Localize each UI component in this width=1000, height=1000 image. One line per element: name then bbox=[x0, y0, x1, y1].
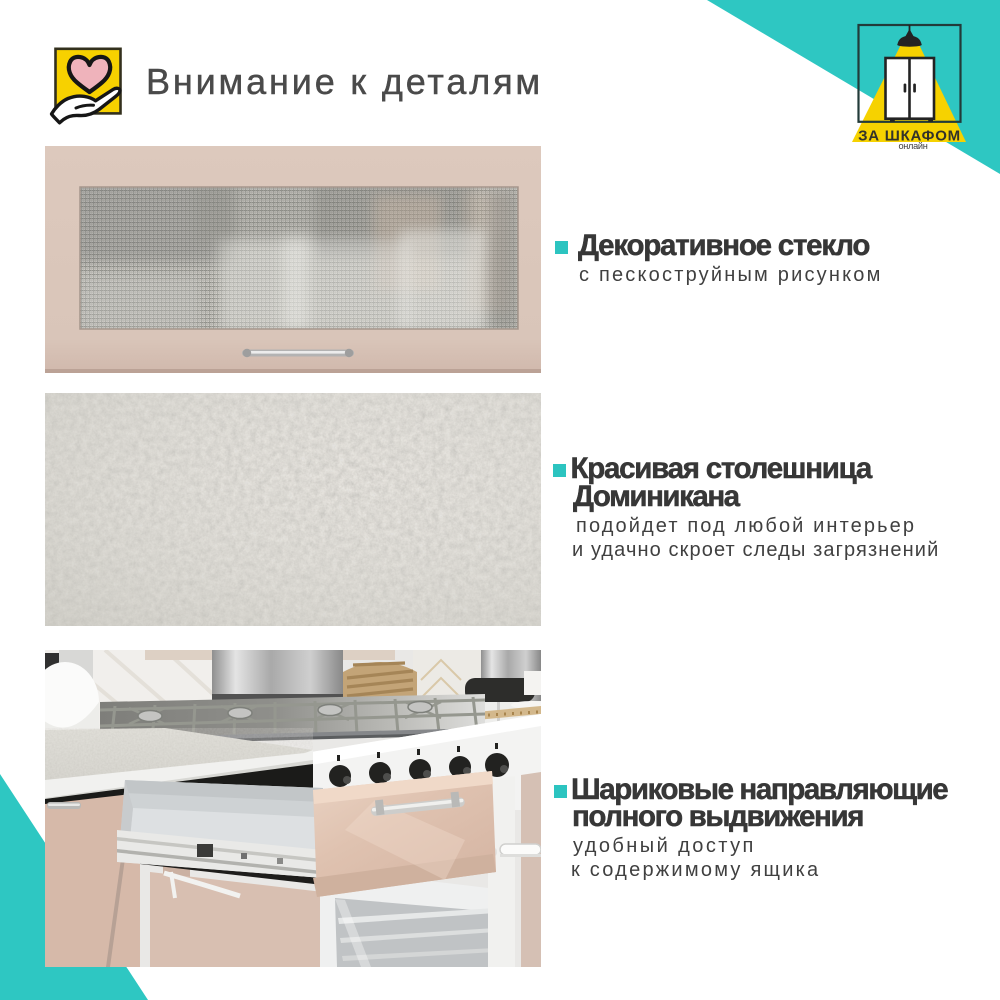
svg-text:онлайн: онлайн bbox=[898, 141, 927, 151]
